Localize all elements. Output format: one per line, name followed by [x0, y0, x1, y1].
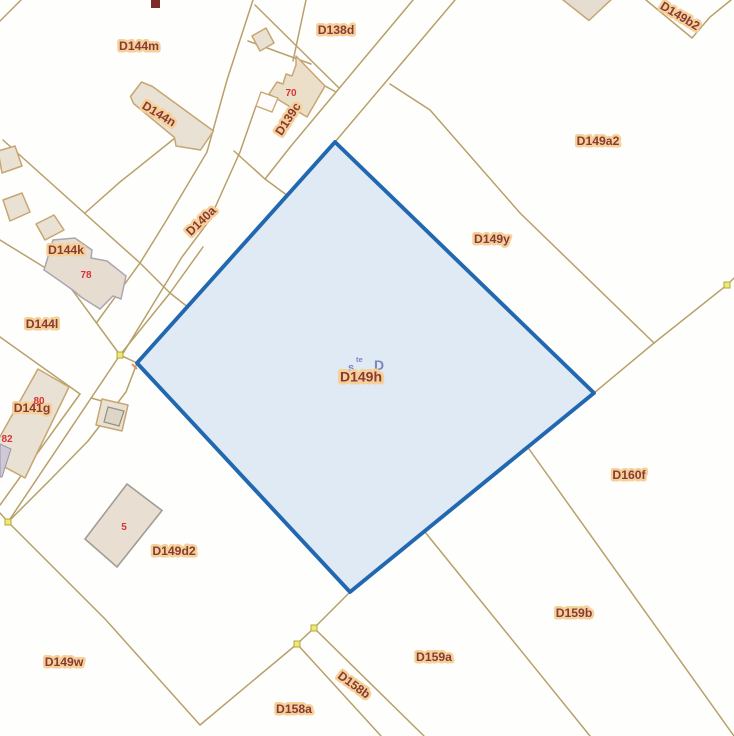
svg-text:D160f: D160f	[612, 468, 646, 482]
svg-text:5: 5	[121, 522, 127, 533]
svg-text:D158a: D158a	[276, 702, 312, 716]
svg-text:D138d: D138d	[318, 23, 355, 37]
svg-text:D159b: D159b	[556, 606, 593, 620]
svg-text:D144m: D144m	[119, 39, 159, 53]
svg-text:D149h: D149h	[340, 369, 382, 385]
svg-text:D149a2: D149a2	[577, 134, 620, 148]
svg-text:82: 82	[1, 434, 13, 445]
svg-text:80: 80	[33, 396, 45, 407]
svg-text:D149y: D149y	[474, 232, 510, 246]
svg-text:70: 70	[285, 88, 297, 99]
svg-text:D149w: D149w	[45, 655, 84, 669]
svg-text:78: 78	[80, 270, 92, 281]
svg-text:D144k: D144k	[48, 243, 84, 257]
svg-text:D144l: D144l	[26, 317, 59, 331]
svg-text:D149d2: D149d2	[152, 544, 196, 558]
svg-text:te: te	[356, 355, 363, 364]
svg-text:D159a: D159a	[416, 650, 452, 664]
svg-text:D141g: D141g	[14, 401, 51, 415]
